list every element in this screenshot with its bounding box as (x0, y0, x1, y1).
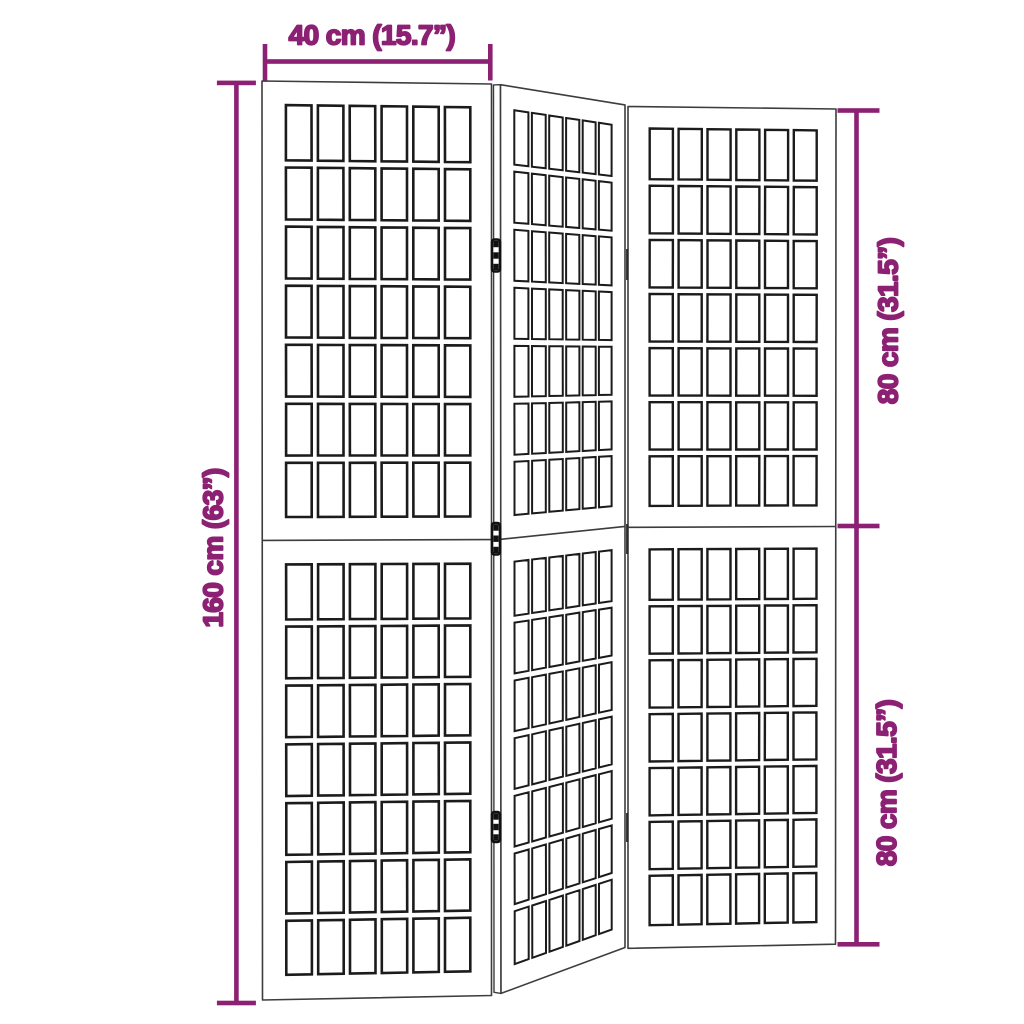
svg-text:40 cm (15.7”): 40 cm (15.7”) (289, 20, 456, 51)
svg-text:80 cm (31.5”): 80 cm (31.5”) (873, 238, 904, 405)
svg-text:80 cm (31.5”): 80 cm (31.5”) (871, 700, 902, 867)
svg-text:160 cm (63”): 160 cm (63”) (198, 468, 229, 627)
